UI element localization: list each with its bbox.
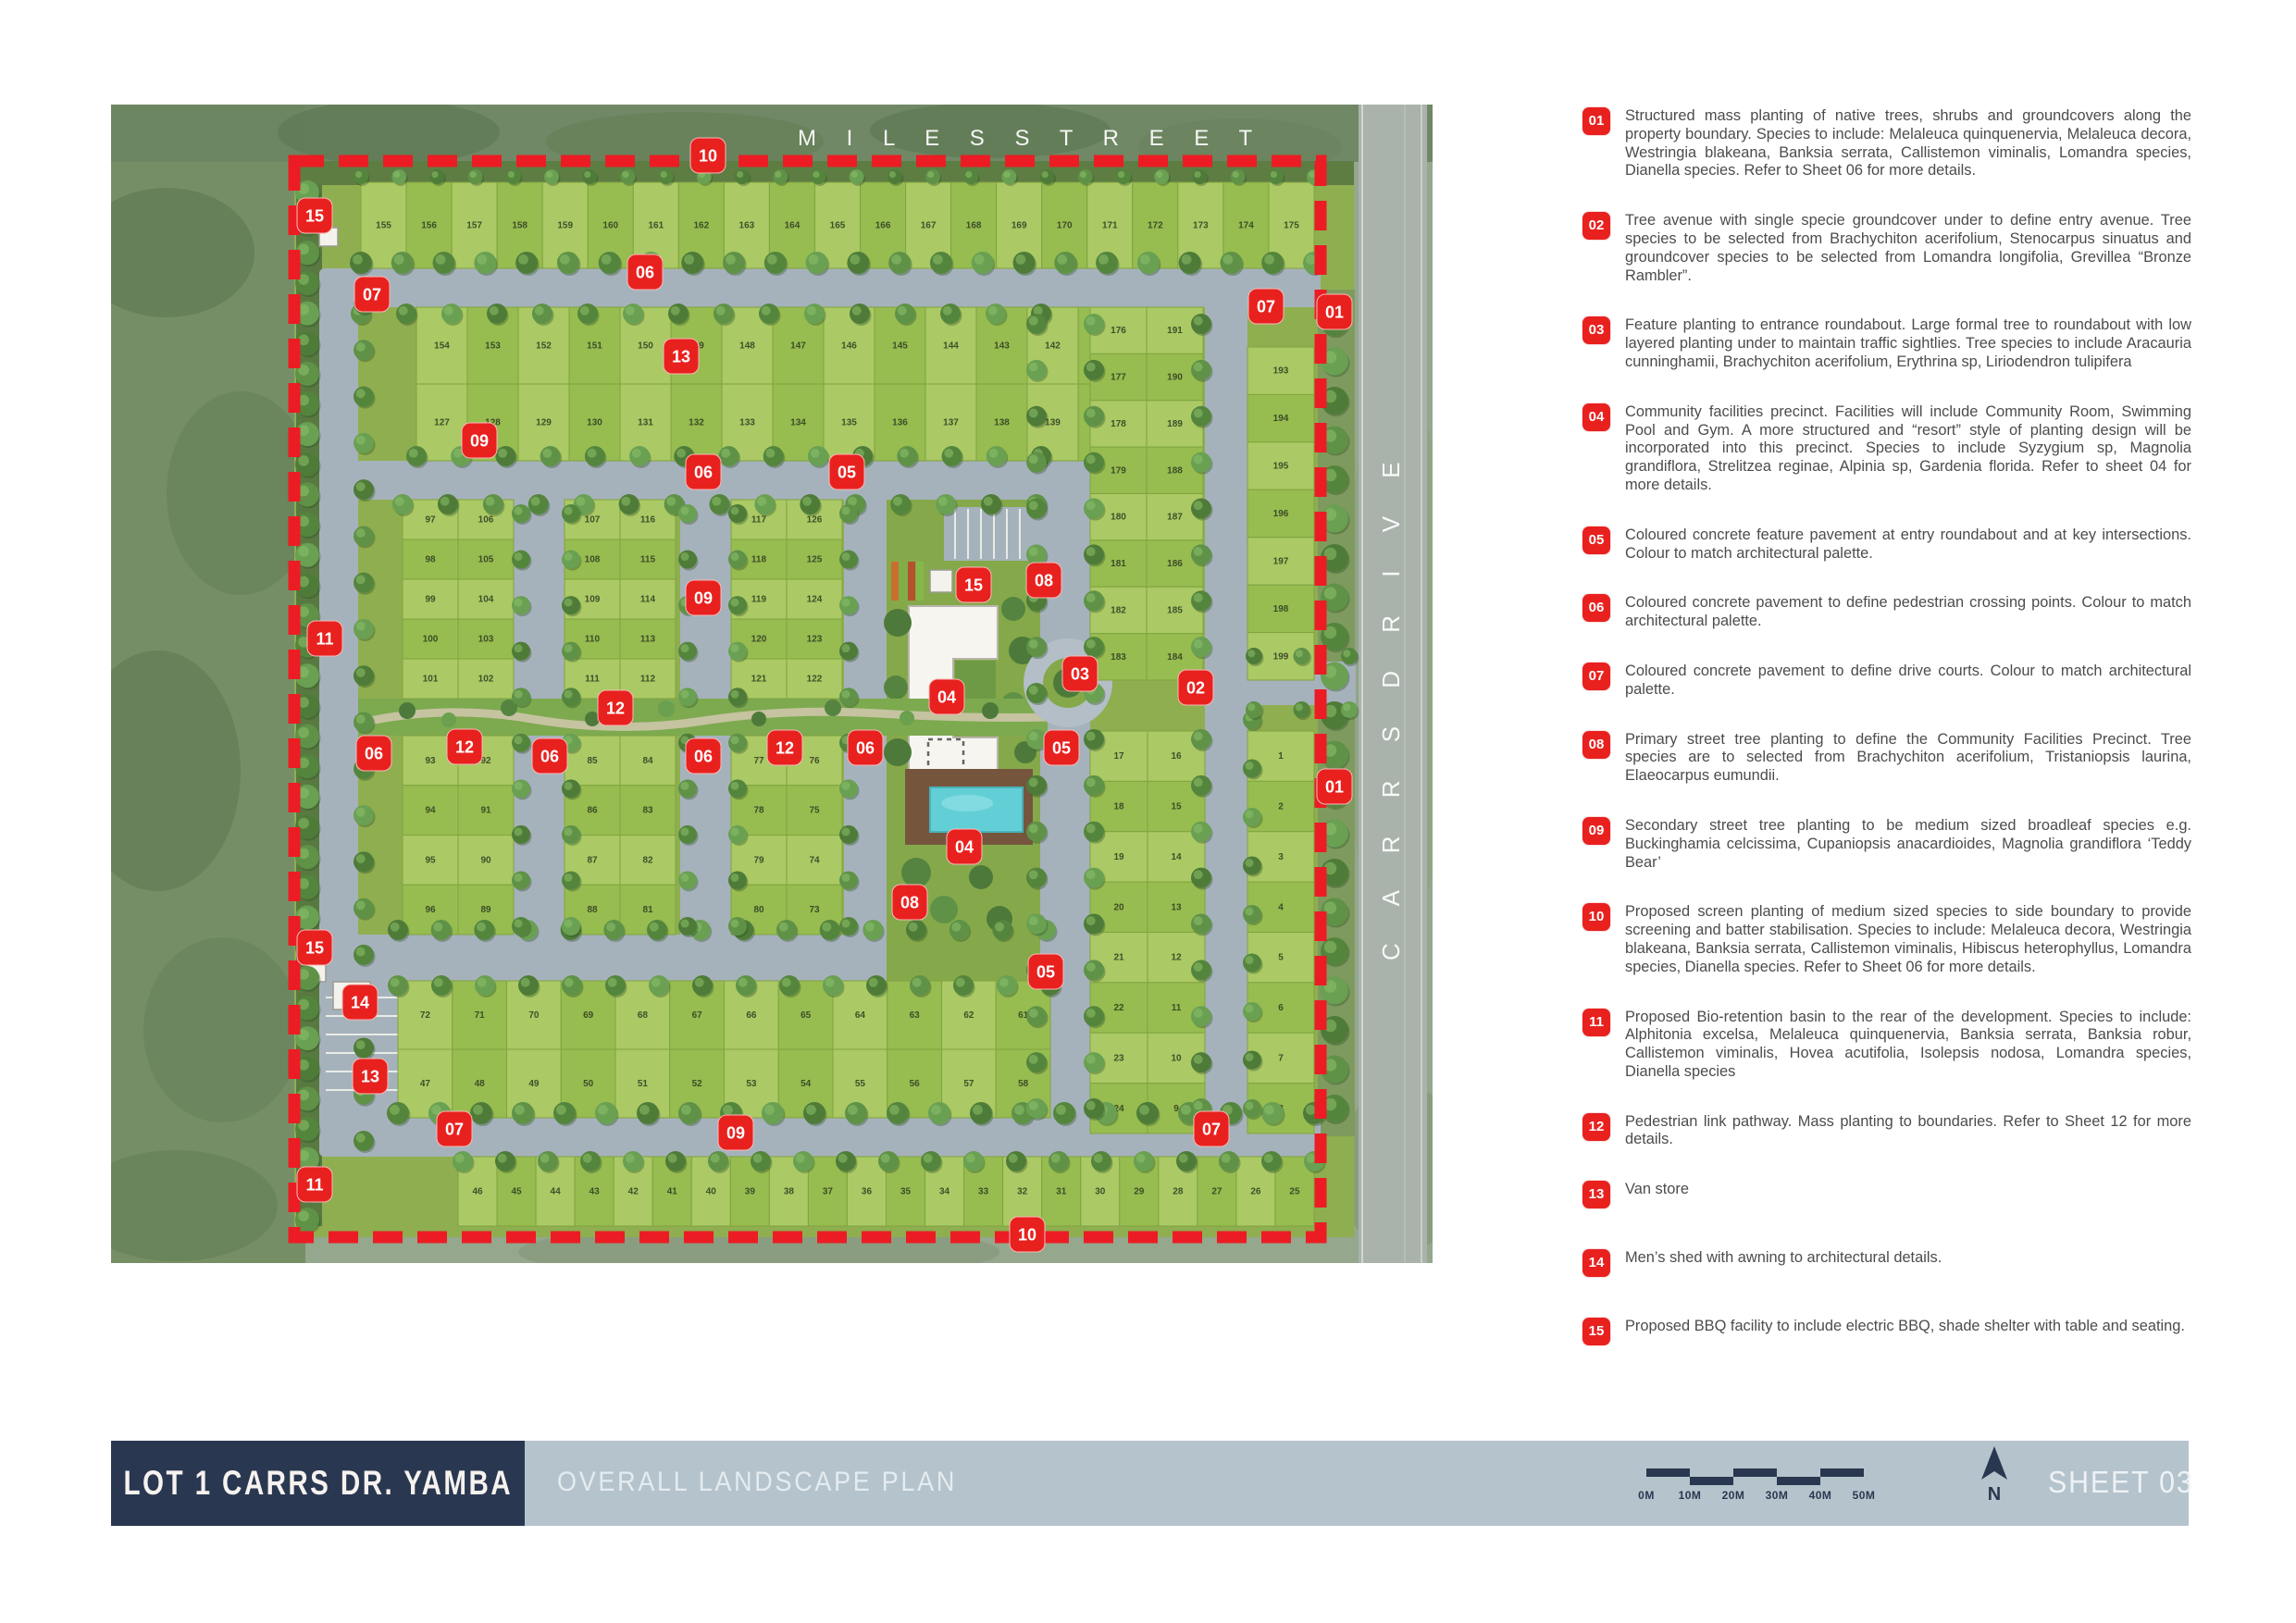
lot-number: 148: [739, 341, 755, 352]
plan-marker-number: 15: [964, 576, 983, 595]
lot-number: 10: [1171, 1053, 1182, 1063]
lot-number: 34: [939, 1187, 950, 1197]
lot-number: 167: [921, 221, 937, 231]
lot-number: 180: [1111, 513, 1126, 523]
lot-number: 6: [1278, 1003, 1284, 1013]
lot-number: 49: [528, 1079, 540, 1089]
lot-number: 3: [1278, 852, 1284, 862]
lot-number: 14: [1171, 852, 1182, 862]
plan-marker: 15: [956, 567, 991, 602]
plan-marker: 15: [297, 198, 332, 233]
legend-item-text: Structured mass planting of native trees…: [1625, 107, 2191, 180]
lot-number: 163: [739, 221, 755, 231]
plan-marker: 07: [437, 1111, 472, 1146]
plan-marker: 02: [1178, 670, 1213, 705]
legend-item: 02Tree avenue with single specie groundc…: [1582, 212, 2193, 285]
lot-number: 147: [790, 341, 806, 352]
plan-marker: 01: [1317, 294, 1352, 329]
lot-number: 132: [689, 418, 704, 428]
plan-marker: 10: [1010, 1217, 1045, 1252]
lot-number: 197: [1273, 556, 1289, 566]
lot-number: 11: [1172, 1003, 1182, 1013]
lot-number: 142: [1045, 341, 1061, 352]
lot-number: 187: [1167, 513, 1183, 523]
lot-number: 98: [425, 555, 436, 565]
lot-number: 130: [587, 418, 602, 428]
plan-marker: 11: [307, 621, 342, 656]
legend-item-text: Primary street tree planting to define t…: [1625, 731, 2191, 786]
plan-marker: 07: [354, 277, 390, 312]
lot-number: 176: [1111, 326, 1126, 336]
lot-number: 108: [585, 555, 601, 565]
lot-number: 23: [1113, 1053, 1124, 1063]
lot-number: 20: [1113, 902, 1124, 912]
lot-number: 125: [807, 555, 823, 565]
plan-marker-number: 04: [955, 838, 974, 857]
lot-number: 107: [585, 515, 601, 526]
legend-item-number: 09: [1582, 817, 1610, 845]
lot-number: 50: [583, 1079, 594, 1089]
north-arrow: N: [1976, 1446, 2013, 1504]
plan-marker-number: 04: [937, 688, 956, 707]
lot-number: 175: [1284, 221, 1299, 231]
plan-marker-number: 01: [1325, 778, 1344, 797]
legend-item-text: Van store: [1625, 1181, 2191, 1199]
lot-number: 37: [823, 1187, 834, 1197]
lot-number: 106: [478, 515, 494, 526]
legend-item-number: 14: [1582, 1249, 1610, 1277]
plan-marker-number: 06: [365, 745, 383, 763]
lot-number: 183: [1111, 652, 1126, 663]
scale-label: 30M: [1766, 1489, 1789, 1502]
plan-marker: 05: [829, 454, 864, 489]
lot-number: 114: [640, 595, 656, 605]
lot-number: 196: [1273, 509, 1289, 519]
lot-number: 38: [784, 1187, 795, 1197]
scale-segment: [1690, 1477, 1733, 1485]
lot-number: 188: [1167, 465, 1183, 476]
lot-number: 150: [638, 341, 653, 352]
legend-item: 03Feature planting to entrance roundabou…: [1582, 316, 2193, 371]
lot-number: 70: [528, 1010, 540, 1021]
lot-number: 47: [420, 1079, 431, 1089]
lot-number: 30: [1095, 1187, 1106, 1197]
lot-number: 67: [692, 1010, 703, 1021]
lot-number: 97: [425, 515, 436, 526]
lot-number: 22: [1113, 1003, 1124, 1013]
legend-item-number: 03: [1582, 316, 1610, 344]
plan-marker-number: 07: [363, 286, 381, 304]
plan-marker-number: 05: [838, 464, 856, 482]
lot-number: 151: [587, 341, 602, 352]
lot-number: 182: [1111, 605, 1126, 615]
plan-marker-number: 10: [699, 147, 717, 166]
lot-number: 121: [751, 675, 767, 685]
legend-item: 09Secondary street tree planting to be m…: [1582, 817, 2193, 872]
lot-number: 159: [557, 221, 573, 231]
plan-marker-number: 13: [361, 1068, 379, 1086]
lot-number: 172: [1148, 221, 1163, 231]
lot-number: 40: [706, 1187, 717, 1197]
lot-number: 42: [628, 1187, 639, 1197]
lot-number: 144: [943, 341, 959, 352]
legend-item: 06Coloured concrete pavement to define p…: [1582, 594, 2193, 631]
legend-item-number: 08: [1582, 731, 1610, 759]
lot-number: 116: [640, 515, 656, 526]
plan-title: OVERALL LANDSCAPE PLAN: [557, 1467, 957, 1498]
lot-number: 55: [855, 1079, 866, 1089]
scale-bar: 0M10M20M30M40M50M: [1646, 1467, 1887, 1504]
lot-number: 101: [423, 675, 439, 685]
north-arrow-icon: [1978, 1446, 2011, 1481]
lot-number: 138: [994, 418, 1010, 428]
lot-number: 169: [1011, 221, 1027, 231]
legend-item-number: 01: [1582, 107, 1610, 135]
lot-number: 29: [1134, 1187, 1145, 1197]
lot-number: 104: [478, 595, 494, 605]
lot-number: 95: [425, 855, 436, 865]
plan-marker-number: 06: [694, 748, 713, 766]
lot-number: 102: [478, 675, 494, 685]
plan-marker: 06: [356, 736, 391, 771]
lot-number: 73: [809, 905, 820, 915]
lot-number: 63: [910, 1010, 921, 1021]
project-title: LOT 1 CARRS DR. YAMBA: [123, 1464, 512, 1503]
lot-number: 2: [1278, 802, 1284, 812]
lot-number: 78: [753, 806, 764, 816]
plan-marker: 11: [297, 1167, 332, 1202]
lot-number: 12: [1171, 953, 1182, 963]
plan-marker: 12: [447, 729, 482, 764]
scale-label: 50M: [1853, 1489, 1876, 1502]
legend-item-number: 06: [1582, 594, 1610, 622]
plan-marker: 06: [686, 738, 721, 774]
lot-number: 39: [745, 1187, 756, 1197]
plan-marker-number: 01: [1325, 304, 1344, 322]
lot-number: 87: [587, 855, 598, 865]
lot-number: 80: [753, 905, 764, 915]
legend-item-text: Men’s shed with awning to architectural …: [1625, 1249, 2191, 1268]
legend-item-text: Coloured concrete pavement to define ped…: [1625, 594, 2191, 631]
plan-marker: 09: [686, 580, 721, 615]
plan-marker-number: 07: [445, 1121, 464, 1139]
lot-number: 33: [978, 1187, 989, 1197]
lot-number: 185: [1167, 605, 1183, 615]
lot-number: 158: [512, 221, 527, 231]
legend-item: 15Proposed BBQ facility to include elect…: [1582, 1318, 2193, 1345]
lot-number: 109: [585, 595, 601, 605]
plan-marker-number: 06: [694, 464, 713, 482]
lot-number: 143: [994, 341, 1010, 352]
lot-number: 25: [1289, 1187, 1300, 1197]
lot-number: 58: [1018, 1079, 1029, 1089]
sheet-page: 1551561571581591601611621631641651661671…: [0, 0, 2296, 1623]
plan-marker: 14: [342, 985, 378, 1020]
lot-number: 75: [809, 806, 820, 816]
lot-number: 162: [694, 221, 710, 231]
lot-number: 131: [638, 418, 653, 428]
lot-number: 178: [1111, 419, 1126, 429]
lot-number: 177: [1111, 373, 1126, 383]
lot-number: 65: [800, 1010, 812, 1021]
lot-number: 16: [1171, 751, 1182, 762]
lot-number: 74: [809, 855, 820, 865]
scale-segment: [1777, 1477, 1820, 1485]
lot-number: 137: [943, 418, 959, 428]
north-label: N: [1976, 1486, 2013, 1503]
plan-marker-number: 05: [1036, 963, 1055, 982]
plan-marker-number: 10: [1018, 1226, 1036, 1245]
plan-marker-number: 12: [455, 738, 474, 757]
legend-item: 12Pedestrian link pathway. Mass planting…: [1582, 1113, 2193, 1150]
lot-number: 194: [1273, 414, 1289, 424]
lot-number: 18: [1113, 802, 1124, 812]
lot-number: 160: [602, 221, 618, 231]
lot-number: 35: [900, 1187, 912, 1197]
lot-number: 105: [478, 555, 494, 565]
lot-number: 199: [1273, 651, 1289, 662]
lot-number: 46: [472, 1187, 483, 1197]
lot-number: 88: [587, 905, 598, 915]
lot-number: 7: [1278, 1053, 1284, 1063]
lot-number: 27: [1211, 1187, 1222, 1197]
legend-item-text: Secondary street tree planting to be med…: [1625, 817, 2191, 872]
sheet-number: SHEET 03: [2048, 1465, 2194, 1500]
lot-number: 99: [425, 595, 436, 605]
plan-marker: 15: [297, 930, 332, 965]
lot-number: 1: [1278, 751, 1284, 762]
scale-segment: [1733, 1468, 1777, 1477]
legend-item: 11Proposed Bio-retention basin to the re…: [1582, 1009, 2193, 1082]
lot-number: 76: [809, 756, 820, 766]
lot-number: 123: [807, 635, 823, 645]
legend-item: 05Coloured concrete feature pavement at …: [1582, 527, 2193, 564]
lot-number: 15: [1171, 802, 1182, 812]
lot-number: 127: [434, 418, 450, 428]
scale-label: 40M: [1809, 1489, 1832, 1502]
scale-label: 20M: [1722, 1489, 1745, 1502]
lot-number: 44: [551, 1187, 562, 1197]
lot-number: 135: [841, 418, 857, 428]
lot-number: 154: [434, 341, 450, 352]
lot-number: 115: [640, 555, 656, 565]
lot-number: 21: [1113, 953, 1124, 963]
lot-number: 157: [466, 221, 482, 231]
lot-number: 69: [583, 1010, 594, 1021]
legend-item-number: 13: [1582, 1181, 1610, 1208]
site-plan-svg: 1551561571581591601611621631641651661671…: [111, 105, 1433, 1263]
legend-item: 04Community facilities precinct. Facilit…: [1582, 403, 2193, 495]
lot-number: 28: [1173, 1187, 1184, 1197]
plan-marker-number: 03: [1071, 665, 1089, 684]
lot-number: 166: [875, 221, 891, 231]
plan-marker: 13: [353, 1059, 388, 1094]
legend-item-text: Community facilities precinct. Facilitie…: [1625, 403, 2191, 495]
plan-marker: 09: [718, 1115, 753, 1150]
lot-number: 43: [590, 1187, 601, 1197]
plan-marker-number: 02: [1186, 679, 1205, 698]
lot-number: 66: [746, 1010, 757, 1021]
plan-marker: 12: [598, 690, 633, 725]
plan-marker-number: 06: [636, 264, 654, 282]
plan-marker-number: 09: [694, 589, 713, 608]
legend-item-text: Coloured concrete pavement to define dri…: [1625, 663, 2191, 700]
lot-number: 83: [642, 806, 653, 816]
lot-number: 165: [830, 221, 846, 231]
lot-number: 79: [753, 855, 764, 865]
legend-item-number: 11: [1582, 1009, 1610, 1036]
plan-marker: 10: [690, 138, 726, 173]
lot-number: 94: [425, 806, 436, 816]
plan-marker-number: 15: [305, 939, 324, 958]
plan-marker: 08: [892, 885, 927, 920]
legend-item-number: 05: [1582, 527, 1610, 554]
lot-number: 126: [807, 515, 823, 526]
lot-number: 186: [1167, 559, 1183, 569]
plan-marker-number: 14: [351, 994, 369, 1012]
lot-number: 89: [480, 905, 491, 915]
lot-number: 191: [1167, 326, 1183, 336]
lot-number: 136: [892, 418, 908, 428]
lot-number: 68: [638, 1010, 649, 1021]
lot-number: 36: [862, 1187, 873, 1197]
lot-number: 4: [1278, 902, 1284, 912]
plan-marker-number: 11: [305, 1176, 323, 1195]
lot-number: 84: [642, 756, 653, 766]
plan-marker: 07: [1194, 1111, 1229, 1146]
legend-item-number: 04: [1582, 403, 1610, 431]
legend-item: 13Van store: [1582, 1181, 2193, 1208]
lot-number: 184: [1167, 652, 1183, 663]
lot-number: 145: [892, 341, 908, 352]
plan-marker: 04: [947, 829, 982, 864]
lot-number: 85: [587, 756, 598, 766]
lot-number: 198: [1273, 604, 1289, 614]
plan-marker-number: 09: [726, 1124, 745, 1143]
lot-number: 5: [1278, 953, 1284, 963]
lot-number: 86: [587, 806, 598, 816]
plan-marker-number: 12: [776, 739, 794, 758]
plan-marker: 05: [1028, 954, 1063, 989]
scale-segment: [1646, 1468, 1690, 1477]
legend-item: 10Proposed screen planting of medium siz…: [1582, 903, 2193, 976]
lot-number: 168: [966, 221, 982, 231]
lot-number: 31: [1056, 1187, 1067, 1197]
plan-marker-number: 06: [856, 739, 875, 758]
plan-marker-number: 09: [470, 432, 489, 451]
legend-item-text: Feature planting to entrance roundabout.…: [1625, 316, 2191, 371]
legend-item: 07Coloured concrete pavement to define d…: [1582, 663, 2193, 700]
lot-number: 100: [423, 635, 439, 645]
lot-number: 81: [642, 905, 653, 915]
lot-number: 117: [751, 515, 767, 526]
lot-number: 90: [480, 855, 491, 865]
plan-marker: 05: [1044, 730, 1079, 765]
plan-marker-number: 15: [305, 207, 324, 226]
lot-number: 118: [751, 555, 767, 565]
plan-marker-number: 08: [1035, 572, 1053, 590]
lot-number: 13: [1171, 902, 1182, 912]
lot-number: 174: [1238, 221, 1254, 231]
lot-number: 17: [1113, 751, 1124, 762]
lot-number: 119: [751, 595, 767, 605]
lot-number: 173: [1193, 221, 1209, 231]
legend-item-text: Proposed screen planting of medium sized…: [1625, 903, 2191, 976]
plan-marker: 01: [1317, 769, 1352, 804]
miles-street-label: M I L E S S T R E E T: [798, 126, 1264, 151]
plan-marker: 03: [1062, 656, 1098, 691]
lot-number: 82: [642, 855, 653, 865]
lot-number: 193: [1273, 366, 1289, 377]
lot-number: 51: [638, 1079, 649, 1089]
lot-number: 91: [480, 806, 491, 816]
lot-number: 56: [910, 1079, 921, 1089]
scale-label: 10M: [1679, 1489, 1702, 1502]
lot-number: 190: [1167, 373, 1183, 383]
lot-number: 113: [640, 635, 656, 645]
plan-marker-number: 13: [672, 348, 690, 366]
legend-panel: 01Structured mass planting of native tre…: [1582, 107, 2193, 1377]
legend-item: 01Structured mass planting of native tre…: [1582, 107, 2193, 180]
lot-number: 111: [585, 675, 600, 685]
plan-marker: 07: [1248, 289, 1284, 324]
lot-number: 93: [425, 756, 436, 766]
lot-number: 71: [475, 1010, 486, 1021]
plan-marker: 06: [627, 254, 663, 290]
scale-label: 0M: [1638, 1489, 1655, 1502]
lot-number: 179: [1111, 465, 1126, 476]
plan-marker: 09: [462, 423, 497, 458]
plan-marker-number: 08: [900, 894, 919, 912]
legend-item-text: Proposed BBQ facility to include electri…: [1625, 1318, 2191, 1336]
legend-item-number: 07: [1582, 663, 1610, 690]
lot-number: 45: [512, 1187, 523, 1197]
lot-number: 103: [478, 635, 494, 645]
lot-number: 62: [963, 1010, 974, 1021]
lot-number: 152: [536, 341, 552, 352]
legend-item-number: 10: [1582, 903, 1610, 931]
lot-number: 122: [807, 675, 823, 685]
site-plan-map: 1551561571581591601611621631641651661671…: [111, 105, 1433, 1263]
plan-marker-number: 07: [1202, 1121, 1221, 1139]
lot-number: 155: [376, 221, 391, 231]
bbq-shelter: [930, 570, 952, 592]
lot-number: 32: [1017, 1187, 1028, 1197]
lot-number: 112: [640, 675, 656, 685]
lot-number: 171: [1102, 221, 1118, 231]
legend-item-text: Coloured concrete feature pavement at en…: [1625, 527, 2191, 564]
lot-number: 170: [1057, 221, 1073, 231]
plan-marker: 12: [767, 730, 802, 765]
lot-number: 134: [790, 418, 806, 428]
legend-item-number: 12: [1582, 1113, 1610, 1141]
legend-item: 08Primary street tree planting to define…: [1582, 731, 2193, 786]
scale-segment: [1820, 1468, 1864, 1477]
lot-number: 146: [841, 341, 857, 352]
lot-number: 52: [692, 1079, 703, 1089]
lot-number: 181: [1111, 559, 1126, 569]
plan-marker: 06: [848, 730, 883, 765]
plan-marker: 06: [532, 738, 567, 774]
plan-marker: 04: [929, 679, 964, 714]
plan-marker: 13: [664, 339, 699, 374]
plan-marker-number: 12: [606, 700, 625, 718]
legend-item-number: 02: [1582, 212, 1610, 240]
lot-number: 41: [667, 1187, 678, 1197]
lot-number: 110: [585, 635, 601, 645]
lot-number: 195: [1273, 462, 1289, 472]
legend-item-text: Pedestrian link pathway. Mass planting t…: [1625, 1113, 2191, 1150]
